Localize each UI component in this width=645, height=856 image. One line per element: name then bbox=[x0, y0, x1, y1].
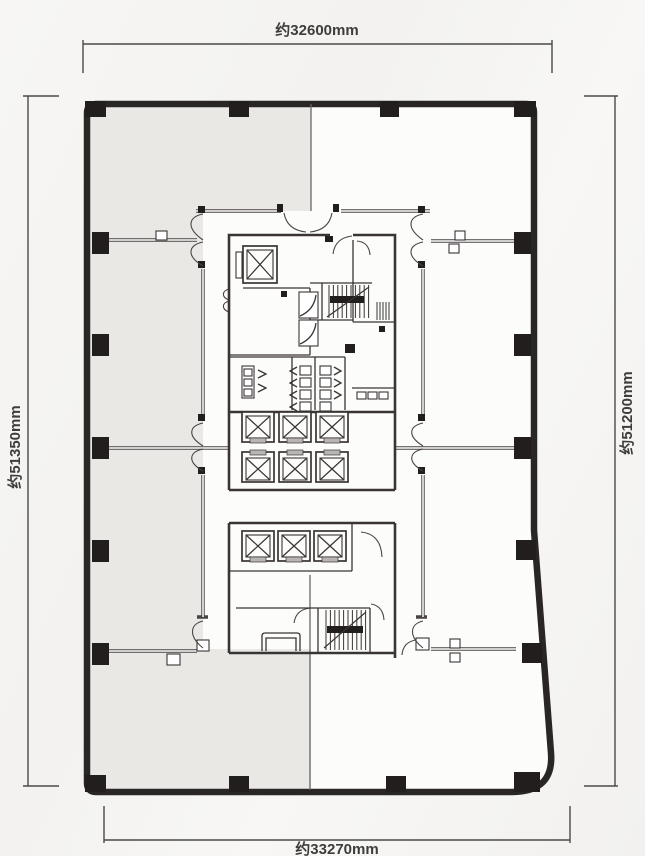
dimension-right: 约51200mm bbox=[584, 96, 636, 786]
elevator-icon-row-b bbox=[242, 450, 348, 482]
floor-plan-svg: 约32600mm 约33270mm 约51350mm 约51200mm bbox=[0, 0, 645, 856]
service-elevator-icon bbox=[236, 246, 277, 283]
dimension-left: 约51350mm bbox=[6, 96, 59, 786]
dimension-top: 约32600mm bbox=[83, 21, 552, 73]
dimension-right-label: 约51200mm bbox=[618, 371, 636, 454]
floor-plan-page: 约32600mm 约33270mm 约51350mm 约51200mm bbox=[0, 0, 645, 856]
elevator-icon-row-a bbox=[242, 412, 348, 443]
dimension-left-label: 约51350mm bbox=[6, 405, 24, 488]
elevator-icon-row-c bbox=[242, 531, 346, 562]
dimension-bottom-label: 约33270mm bbox=[295, 840, 378, 856]
dimension-top-label: 约32600mm bbox=[275, 21, 358, 39]
dimension-bottom: 约33270mm bbox=[104, 806, 570, 856]
